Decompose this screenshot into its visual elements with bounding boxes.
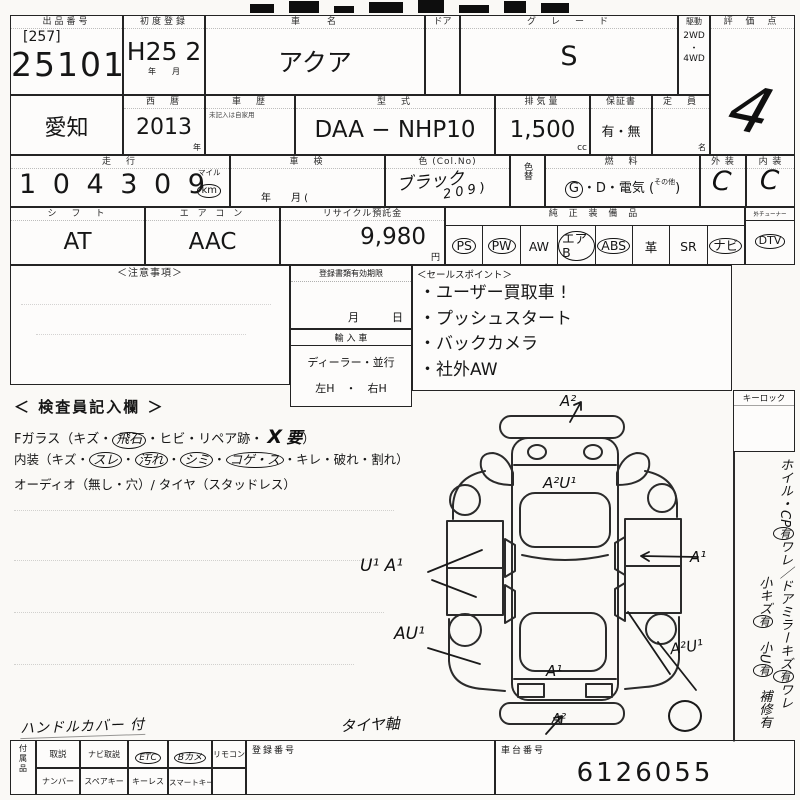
equipment-cell: 純 正 装 備 品 PS PW AW エアB ABS 革 SR ナビ bbox=[445, 207, 745, 265]
clipped-title-glyph bbox=[334, 6, 354, 13]
mileage-value: 1 0 4 3 0 9 bbox=[19, 169, 209, 200]
equipment-item: PS bbox=[446, 226, 482, 266]
car-diagram bbox=[425, 393, 735, 728]
acc-keyless: キーレス bbox=[129, 776, 167, 787]
equipment-item: ABS bbox=[595, 226, 632, 266]
lot-bracket: [257] bbox=[11, 29, 122, 45]
mileage-unit-mile: マイル bbox=[197, 167, 221, 178]
right-margin-notes: ホイル・CP有ワレ／ドアミラーキズ有ワレ 小キズ有 小U有 補修有 bbox=[736, 458, 794, 746]
sales-point: ・社外AW bbox=[419, 358, 731, 384]
clipped-title-glyph bbox=[459, 5, 489, 13]
mileage-unit-km: km bbox=[197, 184, 221, 198]
year-value: 2013 bbox=[124, 115, 204, 140]
clipped-title-glyph bbox=[250, 4, 274, 13]
acc-plate-cell: ナンバー bbox=[36, 768, 80, 795]
chassis-number-cell: 車台番号 6126055 bbox=[495, 740, 795, 795]
acc-smartkey-cell: スマートキー bbox=[168, 768, 212, 795]
document-expiry-box: 登録書類有効期限 月 日 bbox=[290, 265, 412, 329]
acc-backcamera: Bカメ bbox=[174, 752, 206, 764]
inspector-heading: ＜ 検査員記入欄 ＞ bbox=[14, 396, 164, 417]
door-label: ドア bbox=[426, 16, 459, 29]
model-code: DAA − NHP10 bbox=[296, 117, 494, 143]
interior-text: ・キレ・破れ・割れ） bbox=[284, 452, 409, 467]
registration-number-cell: 登録番号 bbox=[246, 740, 495, 795]
grade-value: S bbox=[461, 41, 677, 72]
glass-x-mark: X bbox=[267, 426, 282, 448]
accessories-label-cell: 付属品 bbox=[10, 740, 36, 795]
equipment-pw: PW bbox=[488, 238, 516, 254]
drive-4wd: 4WD bbox=[679, 54, 709, 64]
prefecture: 愛知 bbox=[11, 110, 122, 142]
import-box: 輸 入 車 ディーラー・並行 左H ・ 右H bbox=[290, 329, 412, 407]
scan-noise-line bbox=[14, 560, 374, 561]
car-name-label: 車 名 bbox=[206, 16, 424, 29]
interior-dirt-circled: 汚れ bbox=[135, 452, 168, 468]
recycle-fee-unit: 円 bbox=[431, 250, 440, 263]
acc-sparekey-cell: スペアキー bbox=[80, 768, 128, 795]
interior-grade: C bbox=[759, 164, 780, 196]
inspector-interior-line: 内装（キズ・スレ・汚れ・シミ・コゲ・ス・キレ・破れ・割れ） bbox=[14, 449, 409, 468]
acc-backcamera-cell: Bカメ bbox=[168, 740, 212, 768]
damage-mark-bottom: A² bbox=[552, 712, 566, 727]
recycle-fee-cell: リサイクル預託金 9,980 円 bbox=[280, 207, 445, 265]
acc-etc-cell: ETC bbox=[128, 740, 168, 768]
clipped-title-glyph bbox=[369, 2, 403, 13]
scan-noise-line bbox=[14, 664, 354, 665]
model-code-cell: 型 式 DAA − NHP10 bbox=[295, 95, 495, 155]
equipment-item: ナビ bbox=[707, 226, 744, 266]
model-code-label: 型 式 bbox=[296, 96, 494, 109]
grade-cell: グ レ ー ド S bbox=[460, 15, 678, 95]
sales-points-box: ＜セールスポイント＞ ・ユーザー買取車 ! ・プッシュスタート ・バックカメラ … bbox=[412, 265, 732, 391]
equipment-item: SR bbox=[669, 226, 706, 266]
fuel-other: その他 bbox=[654, 178, 675, 186]
aircon-label: エ ア コ ン bbox=[146, 208, 279, 221]
interior-scuff-circled: スレ bbox=[89, 452, 122, 468]
fuel-gasoline: G bbox=[565, 181, 583, 198]
note-mirror: ワレ／ドアミラーキズ bbox=[777, 540, 792, 670]
notice-label: ＜注意事項＞ bbox=[11, 266, 289, 279]
equipment-item: エアB bbox=[557, 226, 594, 266]
clipped-title-glyph bbox=[418, 0, 444, 13]
damage-mark-right-door: A¹ bbox=[690, 548, 706, 566]
score-label: 評 価 点 bbox=[711, 16, 794, 29]
acc-navi-manual: ナビ取説 bbox=[81, 749, 127, 760]
equipment-item: AW bbox=[520, 226, 557, 266]
scan-noise-line bbox=[14, 510, 394, 511]
interior-text: 内装（キズ・ bbox=[14, 452, 89, 467]
wheel-mirror-note: ホイル・CP有ワレ／ドアミラーキズ有ワレ bbox=[773, 458, 794, 746]
keylock-label: キーロック bbox=[734, 391, 794, 406]
first-registration-label: 初度登録 bbox=[124, 16, 204, 29]
sales-point: ・ユーザー買取車 ! bbox=[419, 281, 731, 307]
color-change-label: 色替 bbox=[521, 162, 534, 192]
import-options: ディーラー・並行 bbox=[291, 354, 411, 370]
equipment-airbag: エアB bbox=[558, 231, 594, 262]
note-has-circled: 有 bbox=[753, 664, 774, 677]
equipment-label: 純 正 装 備 品 bbox=[446, 208, 744, 226]
equipment-abs: ABS bbox=[597, 238, 630, 254]
interior-burn-circled: コゲ・ス bbox=[226, 452, 284, 468]
document-expiry-label: 登録書類有効期限 bbox=[291, 266, 411, 282]
acc-remote: リモコン bbox=[213, 749, 245, 760]
tire-note: タイヤ軸 bbox=[339, 712, 400, 736]
interior-text: ・ bbox=[168, 452, 181, 467]
import-label: 輸 入 車 bbox=[291, 330, 411, 346]
fuel-options: ・D・電気 ( bbox=[583, 181, 654, 196]
note-has-circled: 有 bbox=[773, 527, 794, 540]
aircon-cell: エ ア コ ン AAC bbox=[145, 207, 280, 265]
history-note: 未記入は自家用 bbox=[206, 109, 294, 119]
acc-manual: 取説 bbox=[37, 748, 79, 760]
lot-number-label: 出品番号 bbox=[11, 16, 122, 29]
lot-number: 25101 bbox=[11, 45, 122, 84]
damage-mark-front: A² bbox=[560, 392, 576, 410]
clipped-title-glyph bbox=[541, 3, 569, 13]
small-damage-note: 小キズ有 小U有 補修有 bbox=[753, 458, 774, 746]
equipment-aw: AW bbox=[529, 239, 549, 254]
equipment-ps: PS bbox=[452, 238, 475, 254]
fuel-close: ) bbox=[675, 181, 680, 196]
first-registration-unit: 年 月 bbox=[124, 66, 204, 77]
drive-label: 駆動 bbox=[679, 16, 709, 27]
interior-stain-circled: シミ bbox=[180, 452, 213, 468]
sales-points-label: ＜セールスポイント＞ bbox=[413, 266, 731, 281]
shaken-unit: 年 月 ( bbox=[261, 189, 308, 204]
displacement-label: 排気量 bbox=[496, 96, 589, 109]
sales-point: ・バックカメラ bbox=[419, 332, 731, 358]
drive-cell: 駆動 2WD ・ 4WD bbox=[678, 15, 710, 95]
capacity-unit: 名 bbox=[698, 142, 706, 153]
acc-navi-manual-cell: ナビ取説 bbox=[80, 740, 128, 768]
inspector-audio-line: オーディオ（無し・穴）/ タイヤ（スタッドレス） bbox=[14, 474, 296, 493]
displacement: 1,500 bbox=[496, 117, 589, 143]
fuel-label: 燃 料 bbox=[546, 156, 699, 169]
first-registration-value: H25 2 bbox=[124, 37, 204, 66]
grade-label: グ レ ー ド bbox=[461, 16, 677, 29]
handle-cover-note: ハンドルカバー 付 bbox=[20, 714, 146, 739]
aircon-value: AAC bbox=[146, 229, 279, 255]
acc-sparekey: スペアキー bbox=[81, 776, 127, 787]
acc-empty-cell bbox=[212, 768, 246, 795]
note-has-circled: 有 bbox=[773, 670, 794, 683]
note-repair: 補修有 bbox=[756, 677, 771, 729]
first-registration-cell: 初度登録 H25 2 年 月 bbox=[123, 15, 205, 95]
mileage-units: マイル km bbox=[197, 167, 221, 198]
prefecture-cell: 愛知 bbox=[10, 95, 123, 155]
scan-noise-line bbox=[36, 334, 246, 335]
damage-mark-rear: A¹ bbox=[546, 662, 562, 680]
glass-stone-chip-circled: 飛石 bbox=[112, 432, 146, 449]
warranty-label: 保証書 bbox=[591, 96, 651, 109]
fuel-value: G・D・電気 (その他) bbox=[546, 177, 699, 198]
interior-text: ・ bbox=[122, 452, 135, 467]
registration-number-label: 登録番号 bbox=[247, 741, 494, 756]
inspector-glass-line: Fガラス（キズ・飛石・ヒビ・リペア跡・ X 要） bbox=[14, 424, 315, 449]
chassis-number: 6126055 bbox=[496, 758, 794, 788]
capacity-label: 定 員 bbox=[653, 96, 709, 109]
acc-smartkey: スマートキー bbox=[169, 777, 211, 788]
keylock-box: キーロック bbox=[733, 390, 795, 452]
glass-text: Fガラス（キズ・ bbox=[14, 432, 112, 447]
door-cell: ドア bbox=[425, 15, 460, 95]
glass-required: 要 bbox=[286, 428, 302, 447]
acc-remote-cell: リモコン bbox=[212, 740, 246, 768]
car-name: アクア bbox=[206, 43, 424, 79]
equipment-navi: ナビ bbox=[709, 238, 742, 254]
warranty-value: 有・無 bbox=[591, 121, 651, 140]
equipment-items: PS PW AW エアB ABS 革 SR ナビ bbox=[446, 226, 744, 266]
document-expiry-unit: 月 日 bbox=[348, 309, 403, 325]
equipment-dtv: DTV bbox=[755, 234, 786, 249]
history-cell: 車 歴 未記入は自家用 bbox=[205, 95, 295, 155]
damage-mark-hood: A²U¹ bbox=[543, 474, 576, 492]
accessories-label: 付属品 bbox=[18, 744, 29, 792]
handwritten-circle-mark bbox=[668, 700, 702, 732]
year-cell: 西 暦 2013 年 bbox=[123, 95, 205, 155]
drive-dot: ・ bbox=[679, 41, 709, 54]
note-crack: ワレ bbox=[777, 683, 792, 709]
acc-manual-cell: 取説 bbox=[36, 740, 80, 768]
note-has-circled: 有 bbox=[753, 615, 774, 628]
car-name-cell: 車 名 アクア bbox=[205, 15, 425, 95]
drive-2wd: 2WD bbox=[679, 31, 709, 41]
shaken-label: 車 検 bbox=[231, 156, 384, 169]
year-label: 西 暦 bbox=[124, 96, 204, 109]
displacement-cell: 排気量 1,500 cc bbox=[495, 95, 590, 155]
tuner-cell: 外チューナー DTV bbox=[745, 207, 795, 265]
chassis-number-label: 車台番号 bbox=[496, 741, 794, 756]
clipped-title-glyph bbox=[289, 1, 319, 13]
equipment-leather: 革 bbox=[645, 237, 658, 256]
glass-text: ） bbox=[302, 432, 315, 447]
interior-text: ・ bbox=[213, 452, 226, 467]
acc-plate: ナンバー bbox=[37, 776, 79, 787]
equipment-item: PW bbox=[482, 226, 519, 266]
fuel-cell: 燃 料 G・D・電気 (その他) bbox=[545, 155, 700, 207]
import-handle-options: 左H ・ 右H bbox=[291, 380, 411, 396]
tuner-label: 外チューナー bbox=[746, 208, 794, 221]
shaken-cell: 車 検 年 月 ( bbox=[230, 155, 385, 207]
exterior-grade: C bbox=[710, 165, 732, 198]
acc-keyless-cell: キーレス bbox=[128, 768, 168, 795]
note-wheel: ホイル・CP bbox=[777, 458, 792, 527]
history-label: 車 歴 bbox=[206, 96, 294, 109]
note-small-scratch: 小キズ bbox=[756, 576, 771, 615]
displacement-unit: cc bbox=[577, 143, 587, 153]
damage-mark-left-rear: AU¹ bbox=[394, 624, 425, 644]
equipment-sunroof: SR bbox=[680, 239, 697, 254]
lot-number-cell: 出品番号 [257] 25101 bbox=[10, 15, 123, 95]
year-unit: 年 bbox=[193, 142, 201, 153]
auction-sheet: 出品番号 [257] 25101 初度登録 H25 2 年 月 車 名 アクア … bbox=[0, 0, 800, 800]
color-change-cell: 色替 bbox=[510, 155, 545, 207]
recycle-fee: 9,980 bbox=[360, 224, 426, 250]
clipped-title-glyph bbox=[504, 1, 526, 13]
shift-label: シ フ ト bbox=[11, 208, 144, 221]
warranty-cell: 保証書 有・無 bbox=[590, 95, 652, 155]
acc-etc: ETC bbox=[135, 752, 160, 764]
capacity-cell: 定 員 名 bbox=[652, 95, 710, 155]
mileage-cell: 走 行 1 0 4 3 0 9 マイル km bbox=[10, 155, 230, 207]
damage-mark-left-doors: U¹ A¹ bbox=[360, 556, 403, 576]
recycle-fee-label: リサイクル預託金 bbox=[281, 208, 444, 221]
clipped-title bbox=[250, 0, 580, 13]
mileage-label: 走 行 bbox=[11, 156, 229, 169]
shift-cell: シ フ ト AT bbox=[10, 207, 145, 265]
sales-point: ・プッシュスタート bbox=[419, 307, 731, 333]
equipment-item: 革 bbox=[632, 226, 669, 266]
scan-noise-line bbox=[14, 612, 384, 613]
scan-noise-line bbox=[21, 304, 271, 305]
shift-value: AT bbox=[11, 229, 144, 255]
notice-box: ＜注意事項＞ bbox=[10, 265, 290, 385]
glass-text: ・ヒビ・リペア跡・ bbox=[146, 432, 263, 447]
note-small-dent: 小U bbox=[756, 628, 771, 664]
